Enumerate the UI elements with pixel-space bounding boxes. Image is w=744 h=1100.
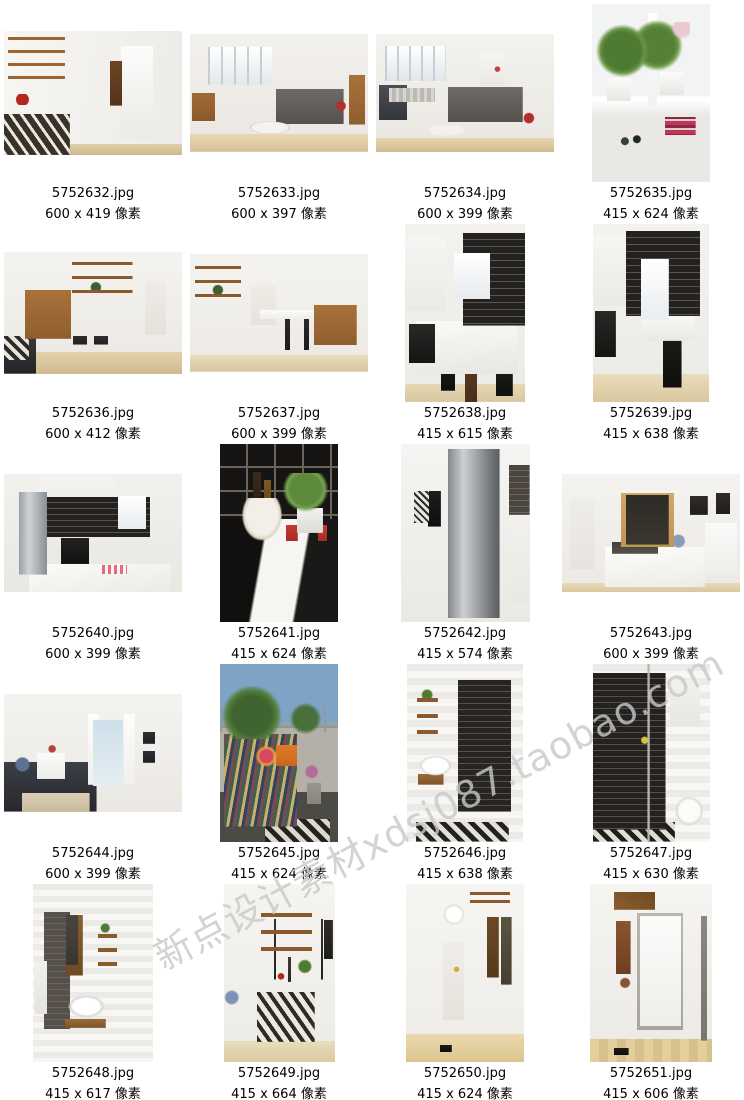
gallery-item: 5752639.jpg 415 x 638 像素 xyxy=(558,222,744,442)
thumbnail-image[interactable] xyxy=(592,4,710,182)
image-filename: 5752640.jpg xyxy=(52,627,134,641)
image-filename: 5752644.jpg xyxy=(52,847,134,861)
image-filename: 5752639.jpg xyxy=(610,407,692,421)
image-dimensions: 415 x 664 像素 xyxy=(231,1088,327,1100)
image-dimensions: 415 x 606 像素 xyxy=(603,1088,699,1100)
gallery-item: 5752638.jpg 415 x 615 像素 xyxy=(372,222,558,442)
thumbnail-container xyxy=(558,222,744,404)
gallery-item: 5752644.jpg 600 x 399 像素 xyxy=(0,662,186,882)
gallery-item: 5752651.jpg 415 x 606 像素 xyxy=(558,882,744,1100)
image-dimensions: 415 x 624 像素 xyxy=(231,648,327,662)
thumbnail-image[interactable] xyxy=(593,664,710,842)
gallery-item: 5752640.jpg 600 x 399 像素 xyxy=(0,442,186,662)
image-dimensions: 600 x 399 像素 xyxy=(45,648,141,662)
image-dimensions: 600 x 399 像素 xyxy=(231,428,327,442)
thumbnail-image[interactable] xyxy=(376,34,554,152)
thumbnail-container xyxy=(558,2,744,184)
thumbnail-image[interactable] xyxy=(4,252,182,374)
image-filename: 5752633.jpg xyxy=(238,187,320,201)
thumbnail-container xyxy=(186,222,372,404)
thumbnail-image[interactable] xyxy=(190,34,368,152)
gallery-item: 5752642.jpg 415 x 574 像素 xyxy=(372,442,558,662)
image-filename: 5752642.jpg xyxy=(424,627,506,641)
image-dimensions: 415 x 638 像素 xyxy=(417,868,513,882)
image-dimensions: 600 x 412 像素 xyxy=(45,428,141,442)
thumbnail-container xyxy=(372,222,558,404)
image-filename: 5752647.jpg xyxy=(610,847,692,861)
thumbnail-image[interactable] xyxy=(4,694,182,812)
gallery-item: 5752641.jpg 415 x 624 像素 xyxy=(186,442,372,662)
gallery-item: 5752633.jpg 600 x 397 像素 xyxy=(186,2,372,222)
image-dimensions: 600 x 399 像素 xyxy=(603,648,699,662)
gallery-item: 5752649.jpg 415 x 664 像素 xyxy=(186,882,372,1100)
image-dimensions: 415 x 615 像素 xyxy=(417,428,513,442)
thumbnail-image[interactable] xyxy=(593,224,709,402)
image-dimensions: 415 x 624 像素 xyxy=(603,208,699,222)
gallery-item: 5752648.jpg 415 x 617 像素 xyxy=(0,882,186,1100)
image-dimensions: 415 x 624 像素 xyxy=(417,1088,513,1100)
thumbnail-image[interactable] xyxy=(406,884,524,1062)
thumbnail-image[interactable] xyxy=(405,224,525,402)
thumbnail-image[interactable] xyxy=(4,474,182,592)
image-filename: 5752650.jpg xyxy=(424,1067,506,1081)
thumbnail-image[interactable] xyxy=(220,444,338,622)
thumbnail-container xyxy=(0,662,186,844)
thumbnail-container xyxy=(0,222,186,404)
thumbnail-container xyxy=(558,442,744,624)
thumbnail-container xyxy=(186,442,372,624)
image-filename: 5752648.jpg xyxy=(52,1067,134,1081)
thumbnail-container xyxy=(372,882,558,1064)
image-dimensions: 600 x 399 像素 xyxy=(45,868,141,882)
image-filename: 5752634.jpg xyxy=(424,187,506,201)
thumbnail-container xyxy=(0,2,186,184)
gallery-item: 5752646.jpg 415 x 638 像素 xyxy=(372,662,558,882)
image-dimensions: 600 x 397 像素 xyxy=(231,208,327,222)
image-dimensions: 600 x 419 像素 xyxy=(45,208,141,222)
image-filename: 5752632.jpg xyxy=(52,187,134,201)
gallery-item: 5752634.jpg 600 x 399 像素 xyxy=(372,2,558,222)
thumbnail-image[interactable] xyxy=(220,664,338,842)
thumbnail-image[interactable] xyxy=(190,254,368,372)
image-filename: 5752649.jpg xyxy=(238,1067,320,1081)
gallery-item: 5752637.jpg 600 x 399 像素 xyxy=(186,222,372,442)
image-dimensions: 415 x 617 像素 xyxy=(45,1088,141,1100)
gallery-item: 5752650.jpg 415 x 624 像素 xyxy=(372,882,558,1100)
thumbnail-image[interactable] xyxy=(224,884,335,1062)
thumbnail-container xyxy=(372,662,558,844)
gallery-item: 5752645.jpg 415 x 624 像素 xyxy=(186,662,372,882)
image-dimensions: 415 x 624 像素 xyxy=(231,868,327,882)
image-dimensions: 415 x 574 像素 xyxy=(417,648,513,662)
thumbnail-container xyxy=(186,882,372,1064)
thumbnail-image[interactable] xyxy=(407,664,523,842)
image-filename: 5752646.jpg xyxy=(424,847,506,861)
image-dimensions: 415 x 630 像素 xyxy=(603,868,699,882)
image-filename: 5752641.jpg xyxy=(238,627,320,641)
thumbnail-image[interactable] xyxy=(590,884,712,1062)
gallery-item: 5752632.jpg 600 x 419 像素 xyxy=(0,2,186,222)
image-filename: 5752635.jpg xyxy=(610,187,692,201)
image-filename: 5752637.jpg xyxy=(238,407,320,421)
thumbnail-container xyxy=(558,662,744,844)
thumbnail-container xyxy=(0,442,186,624)
gallery-item: 5752635.jpg 415 x 624 像素 xyxy=(558,2,744,222)
thumbnail-image[interactable] xyxy=(401,444,530,622)
image-filename: 5752636.jpg xyxy=(52,407,134,421)
image-dimensions: 415 x 638 像素 xyxy=(603,428,699,442)
image-filename: 5752651.jpg xyxy=(610,1067,692,1081)
image-filename: 5752643.jpg xyxy=(610,627,692,641)
gallery-item: 5752643.jpg 600 x 399 像素 xyxy=(558,442,744,662)
image-filename: 5752645.jpg xyxy=(238,847,320,861)
thumbnail-image[interactable] xyxy=(33,884,153,1062)
thumbnail-image[interactable] xyxy=(4,31,182,155)
thumbnail-image[interactable] xyxy=(562,474,740,592)
gallery-item: 5752636.jpg 600 x 412 像素 xyxy=(0,222,186,442)
thumbnail-container xyxy=(186,2,372,184)
gallery-item: 5752647.jpg 415 x 630 像素 xyxy=(558,662,744,882)
image-gallery-grid: 新点设计素材xdsj087.taobao.com 5752632.jpg 600… xyxy=(0,0,744,1100)
image-dimensions: 600 x 399 像素 xyxy=(417,208,513,222)
thumbnail-container xyxy=(558,882,744,1064)
thumbnail-container xyxy=(372,442,558,624)
thumbnail-container xyxy=(186,662,372,844)
thumbnail-container xyxy=(372,2,558,184)
image-filename: 5752638.jpg xyxy=(424,407,506,421)
thumbnail-container xyxy=(0,882,186,1064)
